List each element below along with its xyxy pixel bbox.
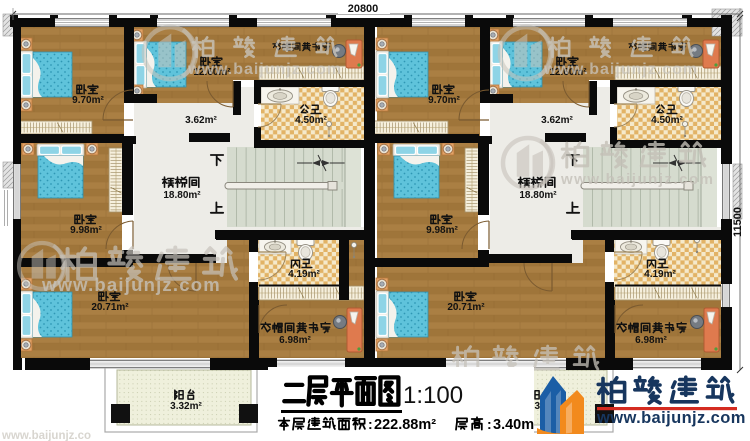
svg-text:3.32m²: 3.32m² xyxy=(170,401,202,412)
svg-text:222.88m²: 222.88m² xyxy=(374,417,436,433)
svg-text:9.98m²: 9.98m² xyxy=(70,225,102,236)
svg-text::: : xyxy=(487,416,492,432)
svg-text:www.baijunjz.com: www.baijunjz.com xyxy=(543,61,698,78)
svg-text:3.62m²: 3.62m² xyxy=(541,115,573,126)
svg-text:4.50m²: 4.50m² xyxy=(651,115,683,126)
svg-text:20.71m²: 20.71m² xyxy=(91,302,129,313)
svg-text:www.baijunjz.co: www.baijunjz.co xyxy=(1,430,91,441)
svg-text:www.baijunjz.com: www.baijunjz.com xyxy=(560,171,714,188)
svg-text:6.98m²: 6.98m² xyxy=(279,335,311,346)
svg-text:20.71m²: 20.71m² xyxy=(447,302,485,313)
svg-text:3.62m²: 3.62m² xyxy=(185,115,217,126)
svg-text:9.98m²: 9.98m² xyxy=(426,225,458,236)
svg-text:18.80m²: 18.80m² xyxy=(163,190,201,201)
svg-text:3.40m: 3.40m xyxy=(493,417,534,433)
svg-text:20800: 20800 xyxy=(348,3,379,15)
svg-text:www.baijunjz.com: www.baijunjz.com xyxy=(596,409,746,427)
svg-text:www.baijunjz.com: www.baijunjz.com xyxy=(41,274,221,295)
svg-text:6.98m²: 6.98m² xyxy=(635,335,667,346)
svg-text:1:100: 1:100 xyxy=(403,382,463,409)
svg-text:11500: 11500 xyxy=(732,207,744,237)
svg-text::: : xyxy=(368,416,373,432)
svg-text:4.19m²: 4.19m² xyxy=(644,269,676,280)
svg-text:9.70m²: 9.70m² xyxy=(428,95,460,106)
svg-text:4.19m²: 4.19m² xyxy=(288,269,320,280)
svg-text:18.80m²: 18.80m² xyxy=(519,190,557,201)
svg-text:www.baijunjz.com: www.baijunjz.com xyxy=(187,61,342,78)
svg-text:4.50m²: 4.50m² xyxy=(295,115,327,126)
svg-text:9.70m²: 9.70m² xyxy=(72,95,104,106)
